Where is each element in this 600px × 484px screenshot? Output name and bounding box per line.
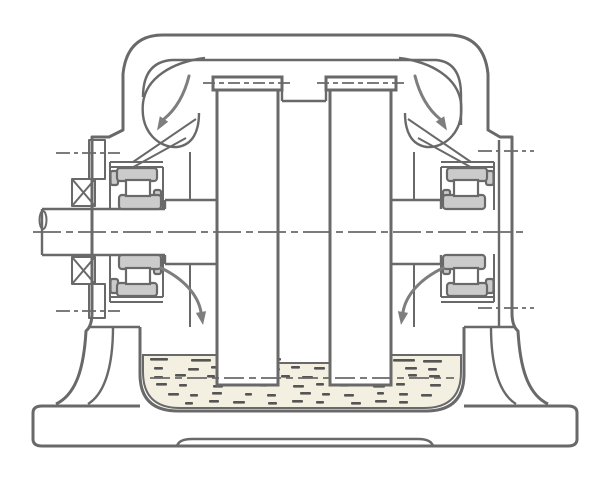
- oil-dash: [191, 359, 211, 362]
- left-shaft-seal-gland: [72, 140, 105, 318]
- upper-right-bearing: [443, 168, 494, 209]
- oil-dash: [245, 393, 252, 396]
- oil-dash: [377, 392, 384, 395]
- oil-dash: [188, 368, 199, 371]
- oil-drain-arrow-bottom-left: [161, 268, 206, 325]
- oil-dash: [351, 402, 361, 405]
- oil-dash: [293, 385, 304, 388]
- oil-dash: [316, 401, 324, 404]
- arrow-curve: [415, 76, 440, 119]
- oil-dash: [405, 367, 417, 370]
- housing-top-inner: [143, 60, 461, 125]
- oil-dash: [399, 401, 408, 404]
- left-leg-inner: [88, 327, 113, 404]
- oil-dash: [408, 374, 417, 377]
- upper-left-bearing: [111, 168, 162, 209]
- roller: [126, 180, 150, 196]
- inner-ring: [443, 195, 485, 209]
- oil-dash: [430, 384, 441, 387]
- oil-dash: [268, 402, 277, 405]
- oil-flow-arrow-top-left: [157, 76, 189, 131]
- arrow-curve: [403, 268, 443, 312]
- oil-dash: [154, 367, 163, 370]
- arrow-head: [398, 311, 408, 325]
- oil-dash: [393, 359, 415, 362]
- oil-drain-arrow-bottom-right: [398, 268, 443, 325]
- oil-dash: [428, 368, 437, 371]
- roller: [126, 268, 150, 284]
- oil-dash: [322, 393, 330, 396]
- oil-sump: [140, 327, 464, 411]
- arrow-curve: [161, 268, 201, 312]
- roller: [454, 180, 478, 196]
- oil-dash: [209, 400, 219, 403]
- lower-left-bearing: [111, 255, 162, 296]
- wheel-body: [330, 90, 391, 385]
- oil-dash: [292, 400, 303, 403]
- wheel-connector-shaft: [282, 90, 326, 101]
- left-gear-wheel: [213, 77, 282, 385]
- bearing-seats: [110, 162, 494, 302]
- right-leg-inner: [491, 327, 516, 404]
- oil-dash: [168, 393, 179, 396]
- oil-dash: [314, 367, 325, 370]
- gear-wheels: [213, 77, 396, 385]
- inner-ring: [119, 195, 161, 209]
- roller: [454, 268, 478, 284]
- oil-dash: [344, 394, 354, 397]
- oil-dash: [423, 360, 442, 363]
- oil-dash: [421, 394, 432, 397]
- oil-dash: [399, 393, 408, 396]
- oil-dash: [375, 400, 387, 403]
- wheel-body: [217, 90, 278, 385]
- oil-flow-arrow-top-right: [415, 76, 447, 131]
- oil-dash: [175, 374, 186, 377]
- inner-ring: [119, 255, 161, 269]
- right-gear-wheel: [326, 77, 396, 385]
- inner-ring: [443, 255, 485, 269]
- machine-cross-section-diagram: [0, 0, 600, 484]
- oil-dash: [190, 394, 198, 397]
- oil-scrolls: [128, 58, 476, 170]
- arrow-head: [196, 311, 206, 325]
- housing-outline: [56, 35, 548, 404]
- oil-dash: [185, 402, 193, 405]
- oil-dash: [233, 401, 245, 404]
- diagram-canvas: [0, 0, 600, 484]
- oil-dash: [291, 366, 300, 369]
- oil-dash: [396, 383, 405, 386]
- bearings: [111, 168, 494, 296]
- oil-dash: [179, 384, 187, 387]
- oil-dash: [267, 394, 276, 397]
- oil-dash: [300, 392, 311, 395]
- oil-dash: [212, 392, 222, 395]
- oil-dash: [316, 383, 324, 386]
- oil-dash: [156, 383, 167, 386]
- lower-right-bearing: [443, 255, 494, 296]
- arrow-curve: [164, 76, 189, 119]
- oil-dash: [150, 358, 168, 361]
